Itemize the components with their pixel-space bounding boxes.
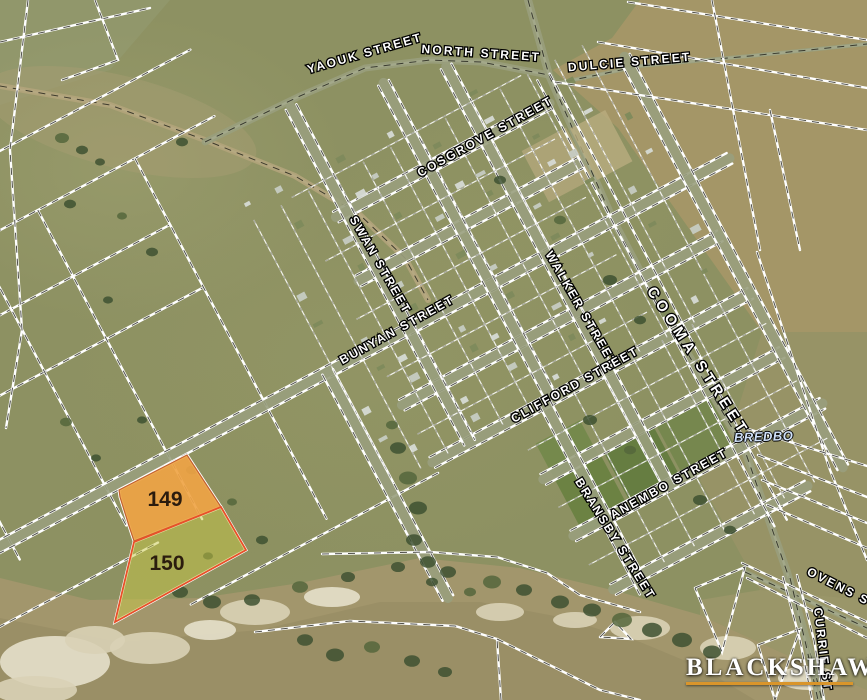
place-label-bredbo: BREDBO (734, 428, 794, 445)
map-viewport[interactable]: YAOUK STREET NORTH STREET DULCIE STREET … (0, 0, 867, 700)
aerial-map[interactable]: YAOUK STREET NORTH STREET DULCIE STREET … (0, 0, 867, 700)
street-label-swan: SWAN STREET (347, 213, 415, 316)
blackshaw-logo-text: BLACKSHAW (686, 655, 867, 681)
lot-149-label: 149 (140, 489, 190, 511)
blackshaw-watermark: BLACKSHAW (686, 655, 867, 685)
blackshaw-logo-underline (686, 682, 853, 685)
lot-150-label: 150 (142, 553, 192, 575)
